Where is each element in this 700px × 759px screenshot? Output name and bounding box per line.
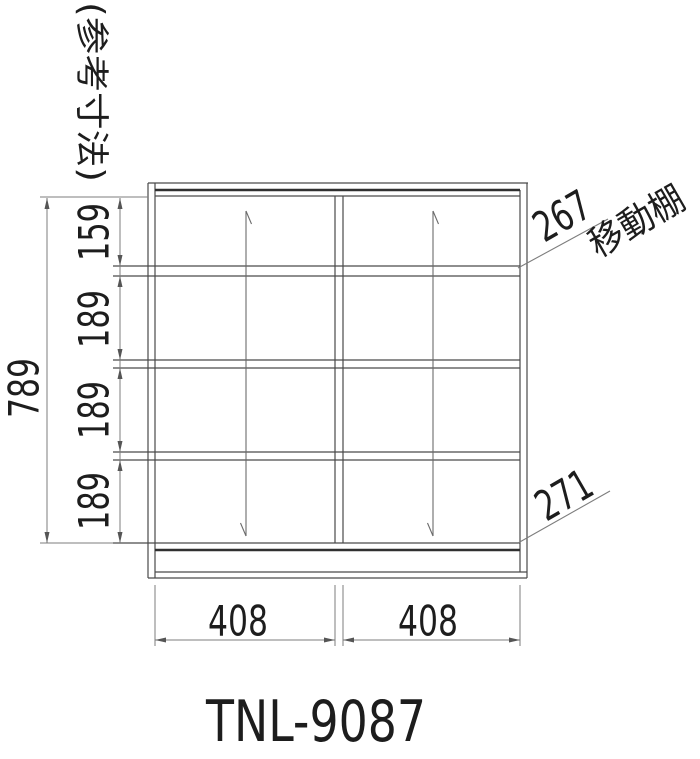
technical-drawing-page: 789 159 189 189 189 — [0, 0, 700, 759]
leader-bottom-shelf: 271 — [518, 459, 610, 543]
movable-shelf-arrow-left — [241, 211, 252, 536]
bottom-width-label-right: 408 — [398, 597, 458, 646]
reference-dimensions-note: (参考寸法) — [71, 2, 111, 182]
bottom-shelf-depth-label: 271 — [527, 459, 602, 530]
section-height-label-2: 189 — [70, 290, 119, 348]
section-height-label-1: 159 — [70, 203, 119, 261]
model-number: TNL-9087 — [205, 689, 426, 755]
section-height-label-3: 189 — [70, 381, 119, 439]
movable-shelf-label: 移動棚 — [582, 178, 693, 266]
shelf-dimension-drawing: 789 159 189 189 189 — [0, 0, 700, 759]
arrowhead-top — [433, 211, 439, 224]
arrowhead-top — [246, 211, 252, 224]
section-height-label-4: 189 — [70, 472, 119, 530]
movable-shelf-arrow-right — [428, 211, 439, 536]
overall-height-label: 789 — [0, 358, 49, 418]
shelves — [113, 266, 520, 550]
dimension-bottom-widths: 408 408 — [155, 585, 520, 646]
dimension-section-heights: 159 189 189 189 — [70, 198, 123, 543]
leader-top-shelf: 267 移動棚 — [518, 178, 692, 268]
arrowhead-bottom — [241, 523, 247, 536]
bottom-width-label-left: 408 — [208, 597, 268, 646]
cabinet-outline — [148, 183, 528, 578]
arrowhead-bottom — [428, 523, 434, 536]
